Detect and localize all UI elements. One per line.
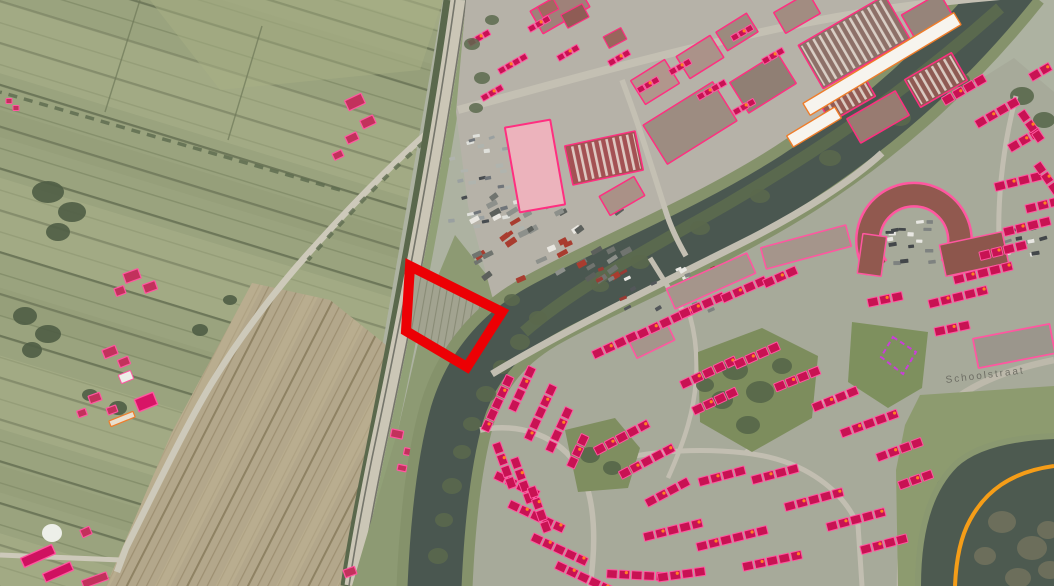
bank-trees [476,386,496,402]
house-row [952,292,964,303]
roof-marker [880,510,883,513]
roof-marker [546,398,549,401]
house-row [977,268,989,279]
roof-marker [578,448,581,451]
car-lot [448,219,455,223]
house-row [667,525,679,536]
roof-marker [503,389,506,392]
farm-trees [192,324,208,336]
roof-marker [521,471,524,474]
park-trees [746,381,774,403]
roof-marker [503,456,506,459]
allotment-trees [469,103,483,113]
roof-marker [982,287,985,290]
house-row [867,297,879,307]
roof-marker [844,519,847,522]
roof-marker [716,474,719,477]
car-lot [496,163,504,168]
house-row [778,553,790,563]
courtyard-parking [927,220,933,224]
bank-trees [510,334,530,350]
roof-marker [878,542,881,545]
house-row [619,570,630,579]
house-row [934,326,946,336]
pond-trees [974,547,996,565]
house-row [1006,178,1018,189]
house-row [644,571,655,580]
roof-marker [1007,263,1010,266]
roof-marker [752,354,755,357]
house-row [1027,220,1039,231]
bank-trees [750,189,770,203]
house-row [940,295,952,306]
house-row [694,567,706,577]
roof-marker [562,421,565,424]
courtyard-parking [923,228,931,231]
farm-trees [22,342,42,358]
roof-marker [698,374,701,377]
house-row [1015,223,1027,234]
roof-marker [710,400,713,403]
courtyard-parking [893,261,901,265]
roof-marker [662,492,665,495]
roof-marker [611,440,614,443]
map-stage: Schoolstraat [0,0,1054,586]
farm-trees [223,295,237,305]
roof-marker [802,499,805,502]
bank-trees [463,417,481,431]
house-row [669,570,681,580]
roof-marker [487,422,490,425]
roof-marker [669,446,672,449]
roof-marker [946,296,949,299]
bank-trees [630,255,650,269]
house-row [946,323,958,333]
roof-marker [655,324,658,327]
water-tank [42,524,62,542]
roof-marker [781,273,784,276]
bank-trees [435,513,453,527]
house-row [720,535,732,546]
house-row [691,519,703,530]
roof-marker [1032,123,1035,126]
apartment-wing [857,234,886,277]
park-trees [736,416,760,434]
roof-marker [830,398,833,401]
bank-house [397,464,407,472]
roof-marker [530,431,533,434]
roof-marker [1046,65,1049,68]
roof-marker [526,508,529,511]
house-row [958,321,970,331]
roof-marker [916,476,919,479]
house-row [928,298,940,309]
courtyard-parking [900,259,909,264]
bank-trees [442,478,462,494]
roof-marker [625,571,628,574]
house-row [742,561,754,571]
house-row [1025,203,1037,214]
roof-marker [1043,201,1046,204]
roof-marker [761,560,764,563]
park-trees [772,358,792,374]
farm-trees [32,181,64,203]
bank-trees [529,311,547,325]
house-row [708,538,720,549]
house-row [964,289,976,300]
bank-trees [504,294,520,306]
pond-trees [1017,536,1047,560]
house-row [790,550,802,560]
roof-marker [538,500,541,503]
roof-marker [739,288,742,291]
tiny-building [13,106,19,111]
roof-marker [959,89,962,92]
roof-marker [886,296,889,299]
tiny-building [6,99,12,104]
house-row [682,569,694,579]
roof-marker [697,520,700,523]
roof-marker [582,556,585,559]
house-row [1037,200,1049,211]
roof-marker [714,539,717,542]
farm-trees [13,307,37,325]
roof-marker [697,304,700,307]
house-row [1018,175,1030,186]
allotment-trees [485,15,499,25]
roof-marker [894,448,897,451]
farm-trees [35,325,61,343]
house-row [989,265,1001,276]
roof-marker [858,424,861,427]
house-row [657,572,669,582]
roof-marker [661,529,664,532]
house-row [1003,226,1015,237]
courtyard-parking [908,244,914,248]
house-row [965,271,977,282]
roof-marker [797,552,800,555]
car-lot [484,149,491,154]
house-row [756,526,768,537]
house-row [994,181,1006,192]
roof-marker [792,378,795,381]
courtyard-parking [916,239,922,242]
roof-marker [992,112,995,115]
bank-trees [690,221,710,235]
farm-trees [46,223,70,241]
pond-trees [988,511,1016,533]
roof-marker [769,472,772,475]
roof-marker [1021,224,1024,227]
roof-marker [559,523,562,526]
roof-marker [1025,136,1028,139]
roof-marker [1012,179,1015,182]
house-row [696,541,708,552]
allotment-trees [464,38,480,50]
roof-marker [997,248,1000,251]
roof-marker [636,464,639,467]
house-row [1015,241,1027,252]
roof-marker [953,325,956,328]
roof-marker [549,541,552,544]
courtyard-parking [898,228,906,231]
bank-trees [428,548,448,564]
roof-marker [676,572,679,575]
house-row [732,532,744,543]
park-trees [603,461,621,475]
house-row [879,294,891,304]
house-row [744,529,756,540]
roof-marker [750,530,753,533]
house-row [766,556,778,566]
map-layers [0,0,1054,586]
house-row [607,569,618,578]
roof-marker [1048,175,1051,178]
house-row [754,558,766,568]
courtyard-parking [907,232,913,236]
house-row [679,522,691,533]
house-row [1001,262,1013,273]
house-row [953,274,965,285]
house-row [643,531,655,542]
farm-trees [58,202,86,222]
roof-marker [610,344,613,347]
bank-house [390,429,403,439]
map-canvas[interactable]: Schoolstraat [0,0,1054,586]
bank-trees [453,445,471,459]
bank-trees [819,150,841,166]
house-row [979,250,991,261]
roof-marker [573,569,576,572]
house-row [891,292,903,302]
house-row [631,571,642,580]
roof-marker [838,490,841,493]
house-row [976,286,988,297]
roof-marker [644,422,647,425]
courtyard-parking [885,231,893,234]
roof-marker [971,272,974,275]
house-row [655,528,667,539]
courtyard-parking [925,249,933,253]
roof-marker [525,380,528,383]
house-row [991,247,1003,258]
allotment-trees [474,72,490,84]
house-row [1003,244,1015,255]
roof-marker [893,411,896,414]
house-row [1039,217,1051,228]
